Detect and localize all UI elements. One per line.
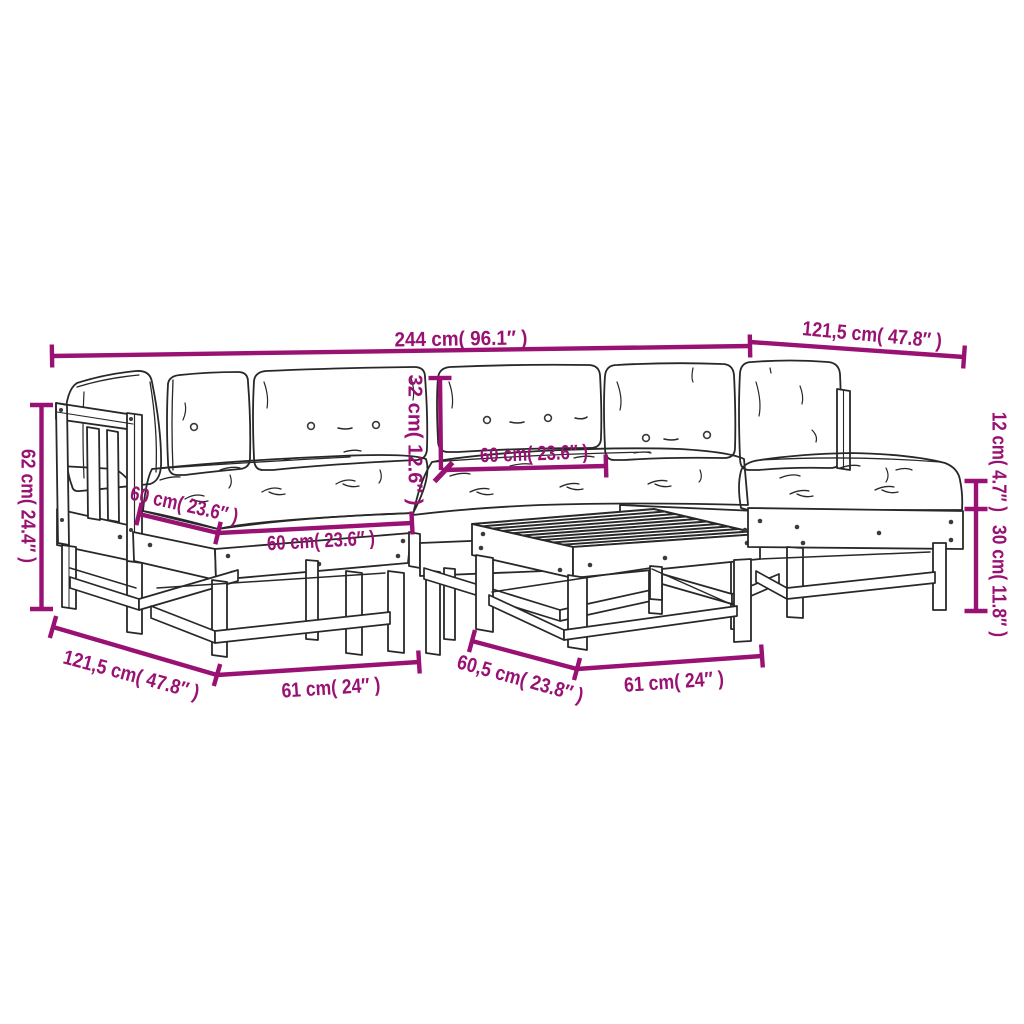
svg-text:12 cm( 4.7″ ): 12 cm( 4.7″ ): [988, 412, 1011, 512]
svg-text:32 cm( 12.6″ ): 32 cm( 12.6″ ): [404, 375, 427, 506]
svg-text:62 cm( 24.4″ ): 62 cm( 24.4″ ): [17, 449, 40, 563]
svg-text:30 cm( 11.8″ ): 30 cm( 11.8″ ): [988, 525, 1011, 637]
svg-text:60 cm( 23.6″ ): 60 cm( 23.6″ ): [480, 441, 589, 468]
svg-text:244 cm( 96.1″ ): 244 cm( 96.1″ ): [394, 326, 527, 351]
